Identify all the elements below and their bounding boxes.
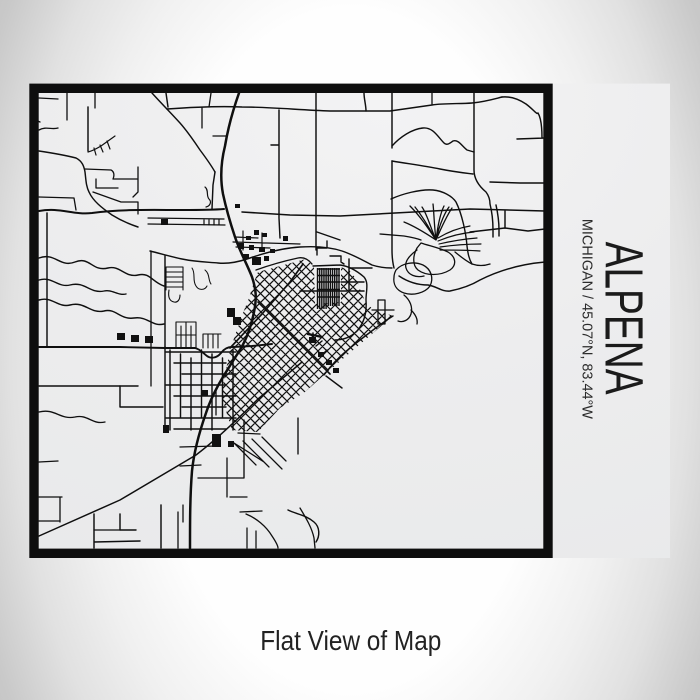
svg-text:ALPENA: ALPENA <box>593 242 653 395</box>
svg-text:Flat View of Map: Flat View of Map <box>260 625 441 656</box>
svg-text:MICHIGAN / 45.07°N, 83.44°W: MICHIGAN / 45.07°N, 83.44°W <box>579 219 596 420</box>
